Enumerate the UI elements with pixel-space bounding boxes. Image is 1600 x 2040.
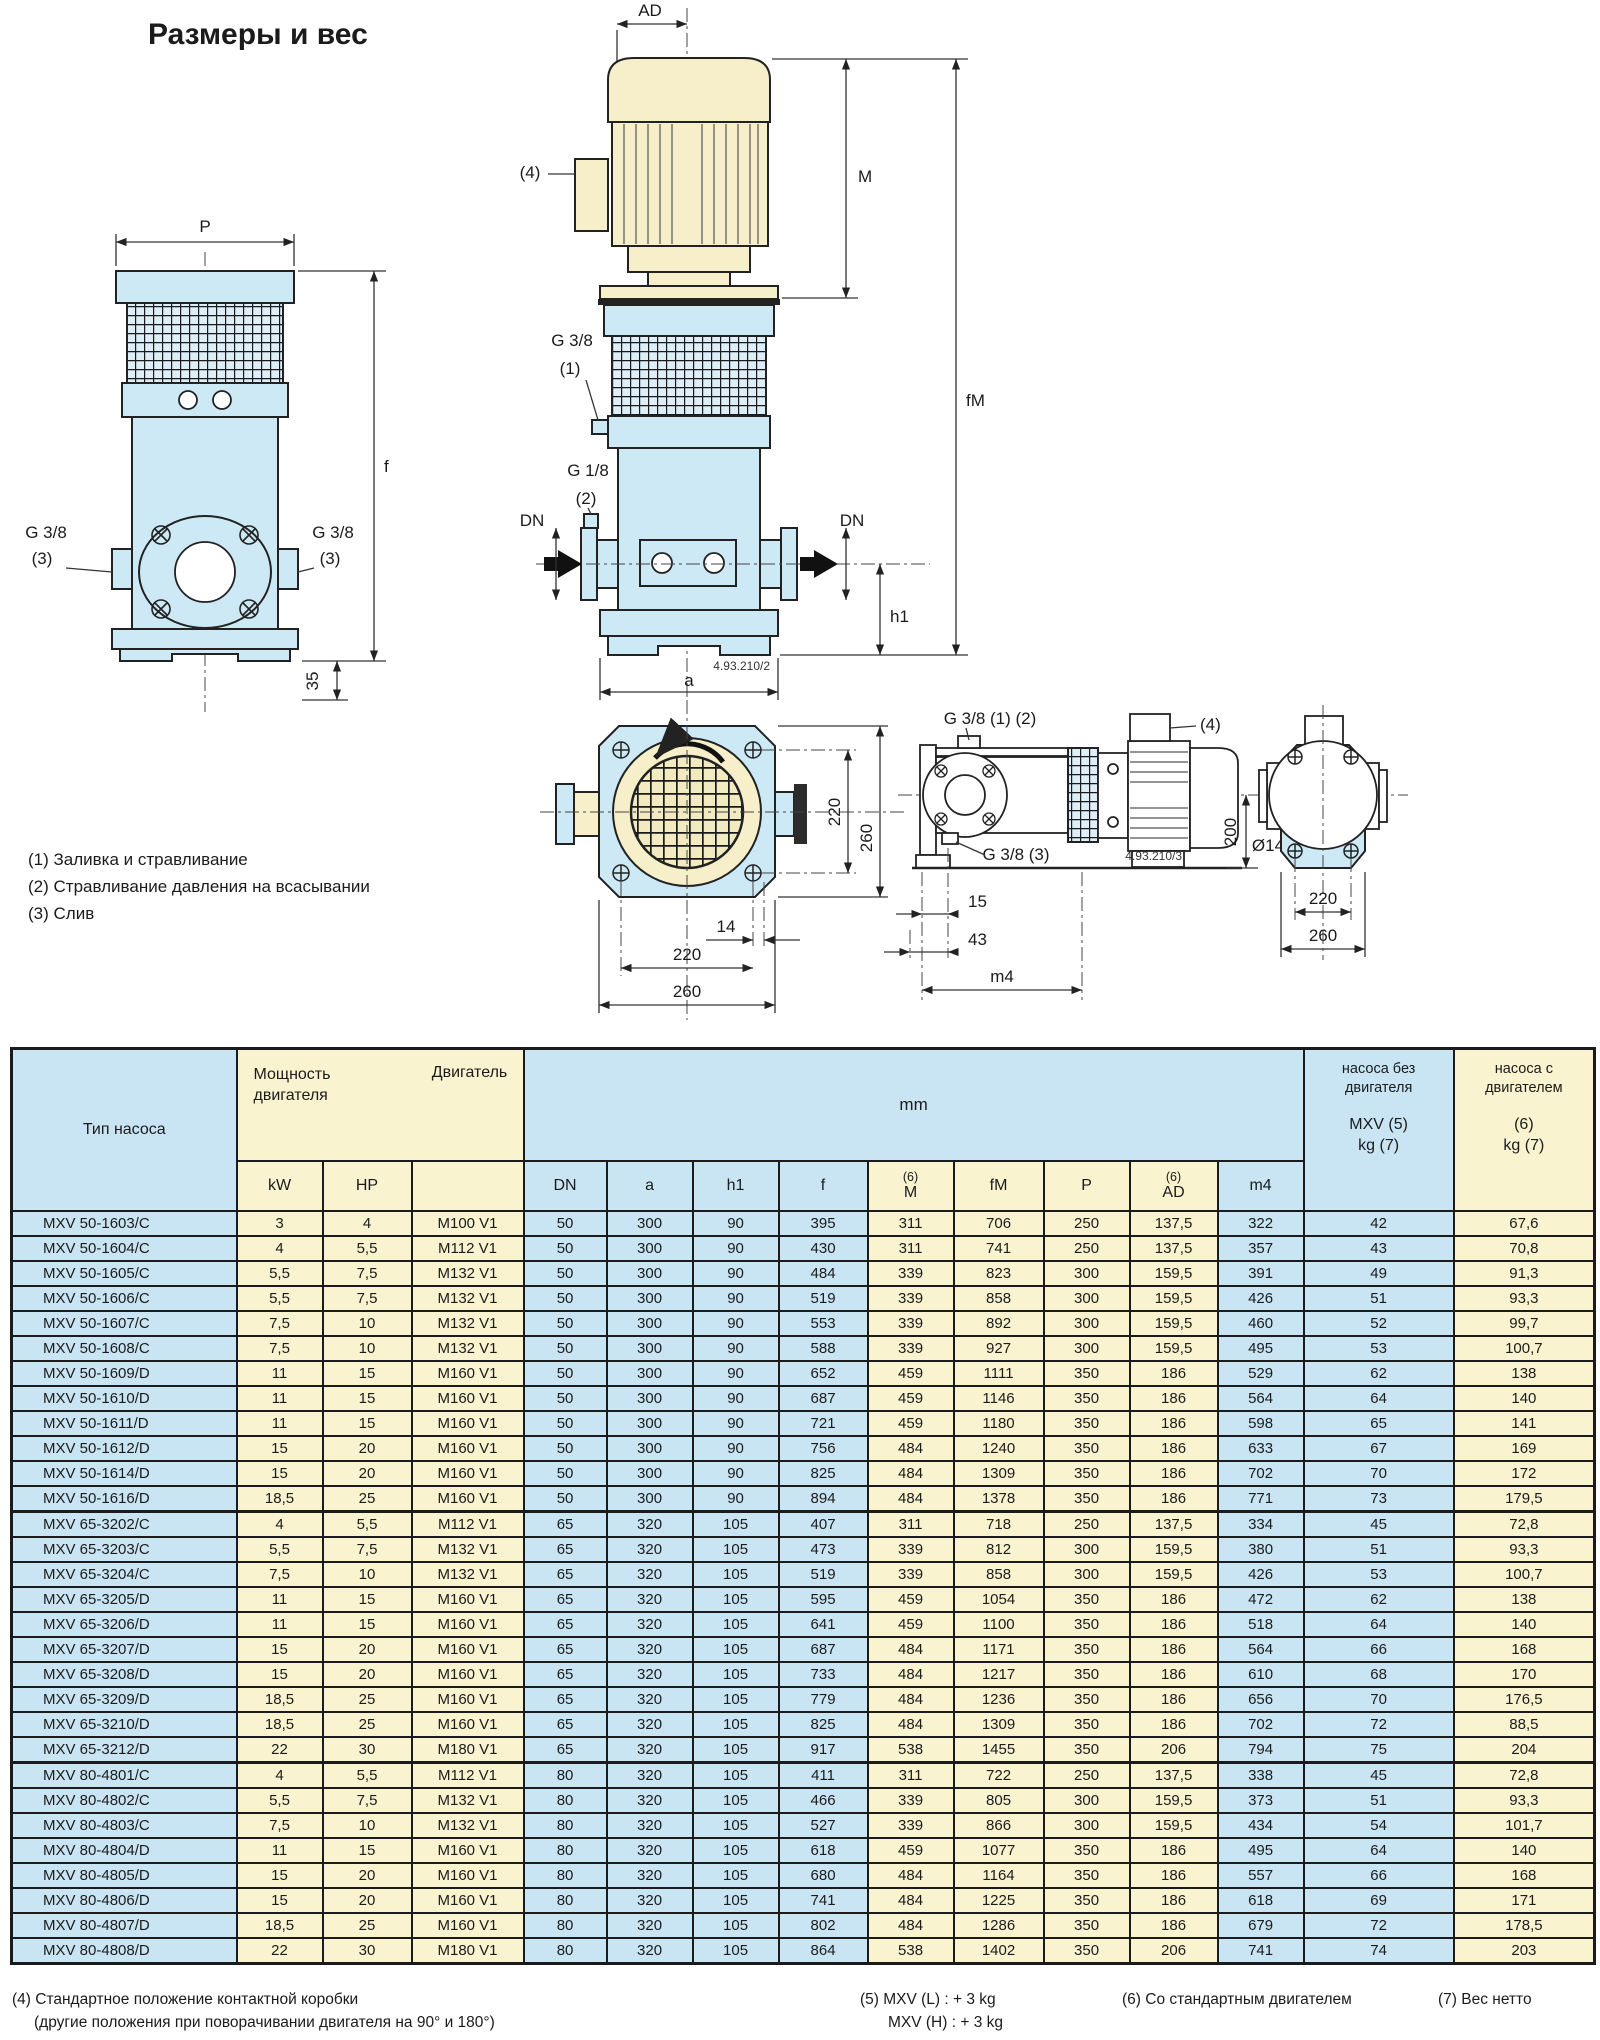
cell-m4: 679: [1218, 1913, 1304, 1938]
cell-pump-type: MXV 50-1606/C: [12, 1286, 237, 1311]
cell-f: 680: [779, 1863, 868, 1888]
cell-ad: 186: [1130, 1687, 1218, 1712]
cell-fm: 1146: [954, 1386, 1044, 1411]
cell-ad: 159,5: [1130, 1261, 1218, 1286]
cell-hp: 30: [323, 1938, 412, 1964]
cell-motor: M160 V1: [412, 1712, 524, 1737]
cell-m4: 357: [1218, 1236, 1304, 1261]
cell-hp: 20: [323, 1863, 412, 1888]
cell-p: 250: [1044, 1763, 1130, 1789]
cell-p: 250: [1044, 1512, 1130, 1538]
cell-fm: 1111: [954, 1361, 1044, 1386]
cell-kw: 7,5: [237, 1562, 323, 1587]
cell-p: 350: [1044, 1637, 1130, 1662]
cell-a: 300: [607, 1261, 693, 1286]
dim-label-260-bottom: 260: [673, 982, 701, 1001]
cell-hp: 7,5: [323, 1537, 412, 1562]
table-row: MXV 50-1616/D18,525M160 V150300908944841…: [12, 1486, 1595, 1512]
table-row: MXV 65-3207/D1520M160 V16532010568748411…: [12, 1637, 1595, 1662]
cell-pump-type: MXV 80-4806/D: [12, 1888, 237, 1913]
cell-m4: 771: [1218, 1486, 1304, 1512]
cell-ad: 159,5: [1130, 1562, 1218, 1587]
cell-ad: 186: [1130, 1863, 1218, 1888]
dim-label-dia14: Ø14: [1252, 836, 1284, 855]
cell-kw: 11: [237, 1361, 323, 1386]
cell-p: 300: [1044, 1813, 1130, 1838]
cell-kg-pump: 64: [1304, 1838, 1454, 1863]
cell-m: 459: [868, 1587, 954, 1612]
cell-hp: 7,5: [323, 1261, 412, 1286]
cell-motor: M160 V1: [412, 1612, 524, 1637]
port-label-g38-left: G 3/8: [25, 523, 67, 542]
table-row: MXV 50-1605/C5,57,5M132 V150300904843398…: [12, 1261, 1595, 1286]
table-row: MXV 65-3206/D1115M160 V16532010564145911…: [12, 1612, 1595, 1637]
cell-kg-with-motor: 171: [1454, 1888, 1595, 1913]
table-row: MXV 50-1612/D1520M160 V15030090756484124…: [12, 1436, 1595, 1461]
header-m-note: (6): [869, 1170, 953, 1184]
cell-kw: 5,5: [237, 1286, 323, 1311]
cell-f: 519: [779, 1286, 868, 1311]
cell-m4: 460: [1218, 1311, 1304, 1336]
dim-label-f: f: [384, 457, 389, 476]
cell-pump-type: MXV 50-1603/C: [12, 1211, 237, 1236]
cell-a: 300: [607, 1286, 693, 1311]
cell-f: 802: [779, 1913, 868, 1938]
cell-f: 519: [779, 1562, 868, 1587]
cell-f: 733: [779, 1662, 868, 1687]
cell-ad: 159,5: [1130, 1286, 1218, 1311]
cell-kg-pump: 49: [1304, 1261, 1454, 1286]
dim-label-220-bottom: 220: [673, 945, 701, 964]
table-row: MXV 65-3203/C5,57,5M132 V165320105473339…: [12, 1537, 1595, 1562]
cell-pump-type: MXV 65-3210/D: [12, 1712, 237, 1737]
cell-pump-type: MXV 65-3209/D: [12, 1687, 237, 1712]
cell-kw: 11: [237, 1838, 323, 1863]
cell-f: 741: [779, 1888, 868, 1913]
cell-h1: 105: [693, 1537, 779, 1562]
cell-kw: 15: [237, 1888, 323, 1913]
cell-hp: 4: [323, 1211, 412, 1236]
cell-f: 466: [779, 1788, 868, 1813]
cell-p: 250: [1044, 1236, 1130, 1261]
cell-kg-pump: 72: [1304, 1913, 1454, 1938]
cell-motor: M160 V1: [412, 1888, 524, 1913]
cell-ad: 186: [1130, 1411, 1218, 1436]
cell-h1: 105: [693, 1687, 779, 1712]
cell-hp: 15: [323, 1612, 412, 1637]
header-power-motor: Мощность двигателя Двигатель: [237, 1049, 524, 1162]
cell-h1: 105: [693, 1712, 779, 1737]
dim-label-h1: h1: [890, 607, 909, 626]
cell-m: 339: [868, 1311, 954, 1336]
header-weight-pump-top: насоса без двигателя: [1305, 1060, 1453, 1098]
cell-m4: 564: [1218, 1386, 1304, 1411]
pump-front-view: P f 35 G 3/8 (3) G 3/8 (3): [25, 217, 389, 712]
cell-m: 484: [868, 1863, 954, 1888]
cell-kg-pump: 70: [1304, 1461, 1454, 1486]
cell-pump-type: MXV 80-4801/C: [12, 1763, 237, 1789]
cell-a: 320: [607, 1838, 693, 1863]
dim-label-fm: fM: [966, 391, 985, 410]
cell-m: 484: [868, 1712, 954, 1737]
cell-motor: M132 V1: [412, 1311, 524, 1336]
cell-h1: 90: [693, 1486, 779, 1512]
cell-a: 320: [607, 1612, 693, 1637]
cell-f: 618: [779, 1838, 868, 1863]
cell-motor: M132 V1: [412, 1336, 524, 1361]
dim-label-15: 15: [968, 892, 987, 911]
cell-kg-with-motor: 100,7: [1454, 1336, 1595, 1361]
cell-m4: 322: [1218, 1211, 1304, 1236]
cell-motor: M132 V1: [412, 1537, 524, 1562]
cell-m: 311: [868, 1211, 954, 1236]
footnote-4-line2: (другие положения при поворачивании двиг…: [12, 2011, 495, 2034]
port-label-3-right: (3): [320, 549, 341, 568]
cell-dn: 50: [524, 1461, 607, 1486]
cell-dn: 65: [524, 1612, 607, 1637]
cell-ad: 206: [1130, 1737, 1218, 1763]
cell-f: 687: [779, 1637, 868, 1662]
port-label-g18: G 1/8: [567, 461, 609, 480]
cell-kw: 18,5: [237, 1687, 323, 1712]
cell-fm: 805: [954, 1788, 1044, 1813]
dim-label-dn-right: DN: [840, 511, 865, 530]
cell-kw: 11: [237, 1612, 323, 1637]
cell-f: 430: [779, 1236, 868, 1261]
dim-label-m: M: [858, 167, 872, 186]
cell-hp: 10: [323, 1562, 412, 1587]
cell-h1: 105: [693, 1938, 779, 1964]
cell-hp: 20: [323, 1461, 412, 1486]
cell-dn: 80: [524, 1863, 607, 1888]
pump-horizontal-view: G 3/8 (1) (2) G 3/8 (3): [884, 705, 1408, 1000]
header-p: P: [1044, 1161, 1130, 1211]
cell-ad: 186: [1130, 1361, 1218, 1386]
cell-motor: M160 V1: [412, 1687, 524, 1712]
cell-kg-pump: 42: [1304, 1211, 1454, 1236]
cell-h1: 90: [693, 1261, 779, 1286]
cell-motor: M160 V1: [412, 1486, 524, 1512]
cell-kg-pump: 67: [1304, 1436, 1454, 1461]
cell-pump-type: MXV 65-3204/C: [12, 1562, 237, 1587]
table-row: MXV 80-4805/D1520M160 V18032010568048411…: [12, 1863, 1595, 1888]
cell-kg-pump: 62: [1304, 1361, 1454, 1386]
cell-m: 484: [868, 1687, 954, 1712]
cell-kg-with-motor: 203: [1454, 1938, 1595, 1964]
cell-hp: 20: [323, 1637, 412, 1662]
cell-fm: 1240: [954, 1436, 1044, 1461]
cell-p: 350: [1044, 1386, 1130, 1411]
cell-a: 300: [607, 1461, 693, 1486]
cell-h1: 105: [693, 1913, 779, 1938]
cell-kw: 18,5: [237, 1712, 323, 1737]
cell-dn: 80: [524, 1838, 607, 1863]
cell-p: 350: [1044, 1461, 1130, 1486]
header-dn: DN: [524, 1161, 607, 1211]
cell-a: 300: [607, 1311, 693, 1336]
cell-p: 300: [1044, 1261, 1130, 1286]
cell-motor: M160 V1: [412, 1461, 524, 1486]
cell-a: 300: [607, 1211, 693, 1236]
cell-kg-with-motor: 93,3: [1454, 1286, 1595, 1311]
cell-kw: 4: [237, 1236, 323, 1261]
cell-h1: 90: [693, 1436, 779, 1461]
cell-h1: 105: [693, 1587, 779, 1612]
cell-h1: 105: [693, 1637, 779, 1662]
cell-m: 484: [868, 1461, 954, 1486]
cell-m: 339: [868, 1788, 954, 1813]
table-row: MXV 65-3204/C7,510M132 V1653201055193398…: [12, 1562, 1595, 1587]
header-hp: HP: [323, 1161, 412, 1211]
port-label-2: (2): [576, 489, 597, 508]
table-row: MXV 50-1608/C7,510M132 V1503009058833992…: [12, 1336, 1595, 1361]
cell-h1: 105: [693, 1838, 779, 1863]
cell-motor: M132 V1: [412, 1261, 524, 1286]
cell-pump-type: MXV 65-3205/D: [12, 1587, 237, 1612]
cell-m: 484: [868, 1662, 954, 1687]
cell-ad: 206: [1130, 1938, 1218, 1964]
cell-fm: 858: [954, 1286, 1044, 1311]
cell-f: 595: [779, 1587, 868, 1612]
cell-pump-type: MXV 65-3212/D: [12, 1737, 237, 1763]
cell-ad: 159,5: [1130, 1788, 1218, 1813]
cell-kg-pump: 45: [1304, 1512, 1454, 1538]
port-label-g38-1: G 3/8: [551, 331, 593, 350]
cell-m: 311: [868, 1763, 954, 1789]
cell-kg-pump: 65: [1304, 1411, 1454, 1436]
dim-label-ad: AD: [638, 1, 662, 20]
cell-m4: 518: [1218, 1612, 1304, 1637]
cell-m: 484: [868, 1436, 954, 1461]
cell-dn: 80: [524, 1913, 607, 1938]
cell-kg-with-motor: 88,5: [1454, 1712, 1595, 1737]
technical-drawing: .blu{fill:#cde9f6;stroke:#222;stroke-wid…: [0, 0, 1600, 1045]
cell-a: 320: [607, 1712, 693, 1737]
cell-m: 311: [868, 1236, 954, 1261]
cell-a: 320: [607, 1888, 693, 1913]
cell-kw: 18,5: [237, 1486, 323, 1512]
cell-kw: 4: [237, 1512, 323, 1538]
cell-kg-with-motor: 140: [1454, 1386, 1595, 1411]
cell-a: 320: [607, 1737, 693, 1763]
cell-a: 300: [607, 1386, 693, 1411]
cell-hp: 15: [323, 1361, 412, 1386]
cell-a: 320: [607, 1913, 693, 1938]
table-row: MXV 65-3202/C45,5M112 V16532010540731171…: [12, 1512, 1595, 1538]
cell-motor: M160 V1: [412, 1386, 524, 1411]
cell-kg-pump: 45: [1304, 1763, 1454, 1789]
cell-motor: M180 V1: [412, 1737, 524, 1763]
cell-dn: 80: [524, 1788, 607, 1813]
cell-ad: 186: [1130, 1486, 1218, 1512]
cell-fm: 823: [954, 1261, 1044, 1286]
callout-4b: (4): [1200, 715, 1221, 734]
cell-m: 459: [868, 1612, 954, 1637]
cell-hp: 10: [323, 1336, 412, 1361]
cell-kw: 5,5: [237, 1788, 323, 1813]
cell-h1: 90: [693, 1386, 779, 1411]
datasheet-page: Размеры и вес (1) Заливка и стравливание…: [0, 0, 1600, 2040]
cell-kg-with-motor: 179,5: [1454, 1486, 1595, 1512]
cell-dn: 50: [524, 1236, 607, 1261]
cell-a: 320: [607, 1537, 693, 1562]
cell-kg-with-motor: 138: [1454, 1361, 1595, 1386]
cell-hp: 5,5: [323, 1763, 412, 1789]
cell-kg-with-motor: 93,3: [1454, 1788, 1595, 1813]
cell-dn: 50: [524, 1336, 607, 1361]
cell-m: 459: [868, 1411, 954, 1436]
cell-pump-type: MXV 65-3208/D: [12, 1662, 237, 1687]
cell-hp: 7,5: [323, 1286, 412, 1311]
cell-kw: 15: [237, 1637, 323, 1662]
header-fm: fM: [954, 1161, 1044, 1211]
header-power: Мощность двигателя: [254, 1064, 374, 1106]
cell-kw: 7,5: [237, 1336, 323, 1361]
cell-kw: 22: [237, 1737, 323, 1763]
cell-pump-type: MXV 65-3203/C: [12, 1537, 237, 1562]
cell-f: 652: [779, 1361, 868, 1386]
cell-m: 538: [868, 1737, 954, 1763]
cell-ad: 159,5: [1130, 1336, 1218, 1361]
cell-kg-with-motor: 178,5: [1454, 1913, 1595, 1938]
cell-fm: 866: [954, 1813, 1044, 1838]
cell-h1: 105: [693, 1737, 779, 1763]
cell-m: 339: [868, 1537, 954, 1562]
cell-kg-pump: 73: [1304, 1486, 1454, 1512]
cell-motor: M160 V1: [412, 1436, 524, 1461]
header-f: f: [779, 1161, 868, 1211]
cell-h1: 105: [693, 1512, 779, 1538]
cell-pump-type: MXV 65-3207/D: [12, 1637, 237, 1662]
cell-hp: 10: [323, 1311, 412, 1336]
cell-a: 320: [607, 1562, 693, 1587]
cell-kg-pump: 72: [1304, 1712, 1454, 1737]
cell-fm: 1171: [954, 1637, 1044, 1662]
cell-h1: 90: [693, 1236, 779, 1261]
cell-kg-pump: 68: [1304, 1662, 1454, 1687]
cell-f: 894: [779, 1486, 868, 1512]
cell-dn: 65: [524, 1537, 607, 1562]
dimensions-table: Тип насоса Мощность двигателя Двигатель …: [10, 1047, 1596, 1965]
table-row: MXV 50-1604/C45,5M112 V15030090430311741…: [12, 1236, 1595, 1261]
cell-hp: 15: [323, 1411, 412, 1436]
cell-m4: 373: [1218, 1788, 1304, 1813]
cell-pump-type: MXV 50-1614/D: [12, 1461, 237, 1486]
port-label-1: (1): [560, 359, 581, 378]
cell-h1: 105: [693, 1888, 779, 1913]
cell-dn: 80: [524, 1888, 607, 1913]
cell-m4: 495: [1218, 1336, 1304, 1361]
cell-pump-type: MXV 50-1610/D: [12, 1386, 237, 1411]
header-weight-with-motor-top: насоса с двигателем: [1455, 1060, 1594, 1098]
cell-pump-type: MXV 50-1608/C: [12, 1336, 237, 1361]
cell-kw: 15: [237, 1461, 323, 1486]
cell-p: 350: [1044, 1863, 1130, 1888]
cell-fm: 1217: [954, 1662, 1044, 1687]
cell-kw: 5,5: [237, 1261, 323, 1286]
cell-m4: 380: [1218, 1537, 1304, 1562]
cell-motor: M112 V1: [412, 1763, 524, 1789]
cell-h1: 90: [693, 1311, 779, 1336]
cell-ad: 159,5: [1130, 1311, 1218, 1336]
callout-4: (4): [520, 163, 541, 182]
cell-ad: 186: [1130, 1712, 1218, 1737]
cell-pump-type: MXV 50-1607/C: [12, 1311, 237, 1336]
table-row: MXV 80-4807/D18,525M160 V180320105802484…: [12, 1913, 1595, 1938]
table-row: MXV 80-4803/C7,510M132 V1803201055273398…: [12, 1813, 1595, 1838]
cell-hp: 5,5: [323, 1236, 412, 1261]
cell-pump-type: MXV 80-4805/D: [12, 1863, 237, 1888]
cell-hp: 15: [323, 1838, 412, 1863]
table-row: MXV 65-3205/D1115M160 V16532010559545910…: [12, 1587, 1595, 1612]
cell-f: 756: [779, 1436, 868, 1461]
cell-m: 484: [868, 1888, 954, 1913]
table-row: MXV 50-1609/D1115M160 V15030090652459111…: [12, 1361, 1595, 1386]
cell-f: 687: [779, 1386, 868, 1411]
cell-f: 779: [779, 1687, 868, 1712]
cell-f: 411: [779, 1763, 868, 1789]
cell-kg-with-motor: 176,5: [1454, 1687, 1595, 1712]
cell-m: 459: [868, 1361, 954, 1386]
cell-fm: 1054: [954, 1587, 1044, 1612]
cell-ad: 186: [1130, 1436, 1218, 1461]
cell-p: 350: [1044, 1838, 1130, 1863]
cell-hp: 15: [323, 1386, 412, 1411]
header-m-label: M: [904, 1184, 917, 1201]
cell-h1: 90: [693, 1361, 779, 1386]
table-row: MXV 50-1610/D1115M160 V15030090687459114…: [12, 1386, 1595, 1411]
cell-a: 320: [607, 1938, 693, 1964]
header-a: a: [607, 1161, 693, 1211]
cell-kg-pump: 51: [1304, 1537, 1454, 1562]
cell-a: 320: [607, 1637, 693, 1662]
cell-hp: 5,5: [323, 1512, 412, 1538]
cell-fm: 1100: [954, 1612, 1044, 1637]
cell-dn: 65: [524, 1662, 607, 1687]
cell-f: 407: [779, 1512, 868, 1538]
dim-label-p: P: [199, 217, 210, 236]
cell-p: 350: [1044, 1486, 1130, 1512]
cell-m: 459: [868, 1838, 954, 1863]
cell-dn: 65: [524, 1712, 607, 1737]
cell-h1: 90: [693, 1336, 779, 1361]
cell-pump-type: MXV 80-4803/C: [12, 1813, 237, 1838]
cell-ad: 186: [1130, 1461, 1218, 1486]
dim-label-260-end: 260: [1309, 926, 1337, 945]
cell-h1: 105: [693, 1863, 779, 1888]
drawing-code-3: 4.93.210/3: [1125, 849, 1182, 863]
cell-p: 350: [1044, 1712, 1130, 1737]
cell-ad: 186: [1130, 1913, 1218, 1938]
cell-motor: M160 V1: [412, 1587, 524, 1612]
cell-p: 350: [1044, 1737, 1130, 1763]
cell-hp: 20: [323, 1662, 412, 1687]
cell-m: 459: [868, 1386, 954, 1411]
cell-p: 350: [1044, 1587, 1130, 1612]
dim-label-220-side: 220: [825, 798, 844, 826]
cell-h1: 105: [693, 1813, 779, 1838]
cell-p: 300: [1044, 1788, 1130, 1813]
cell-ad: 186: [1130, 1612, 1218, 1637]
cell-h1: 90: [693, 1211, 779, 1236]
cell-kw: 7,5: [237, 1311, 323, 1336]
cell-hp: 7,5: [323, 1788, 412, 1813]
cell-m4: 794: [1218, 1737, 1304, 1763]
cell-a: 320: [607, 1863, 693, 1888]
cell-kg-with-motor: 170: [1454, 1662, 1595, 1687]
cell-kg-pump: 75: [1304, 1737, 1454, 1763]
cell-f: 641: [779, 1612, 868, 1637]
